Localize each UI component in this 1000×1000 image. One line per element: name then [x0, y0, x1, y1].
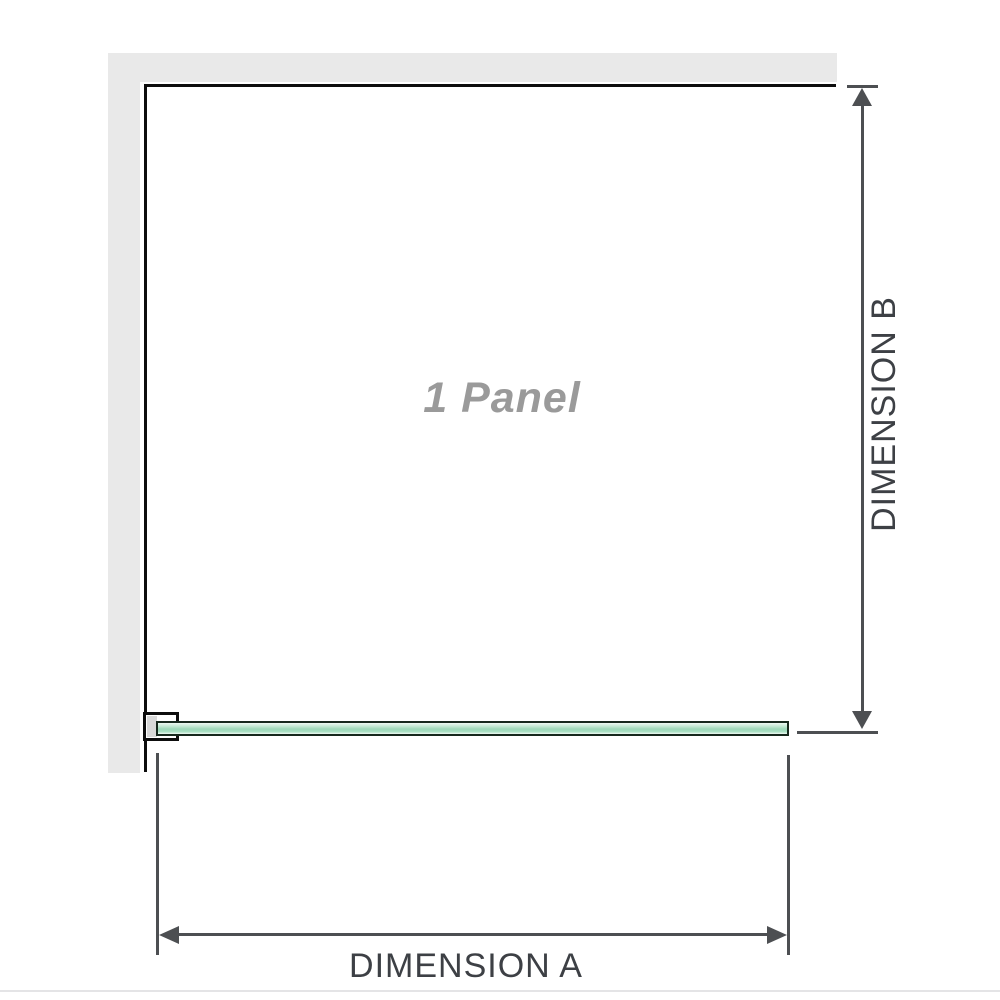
panel-outline-top — [144, 84, 836, 87]
glass-panel-bar — [156, 721, 789, 736]
dimension-b-label: DIMENSION B — [866, 294, 902, 534]
arrow-right-icon — [767, 926, 787, 944]
bottom-divider — [0, 990, 1000, 992]
dimension-b-line — [861, 100, 864, 713]
diagram-canvas: 1 Panel DIMENSION B DIMENSION A — [0, 0, 1000, 1000]
arrow-down-icon — [852, 711, 872, 729]
dimension-a-label: DIMENSION A — [346, 948, 586, 984]
dimension-a-line — [172, 933, 774, 936]
dimension-a-extension-right — [787, 755, 790, 955]
arrow-up-icon — [852, 88, 872, 106]
panel-outline-left — [144, 84, 147, 772]
wall-left — [108, 53, 140, 773]
dimension-a-extension-left — [156, 753, 159, 955]
dimension-b-tick-bottom — [797, 731, 878, 734]
panel-label: 1 Panel — [380, 372, 624, 424]
arrow-left-icon — [159, 926, 179, 944]
wall-top — [108, 53, 837, 82]
